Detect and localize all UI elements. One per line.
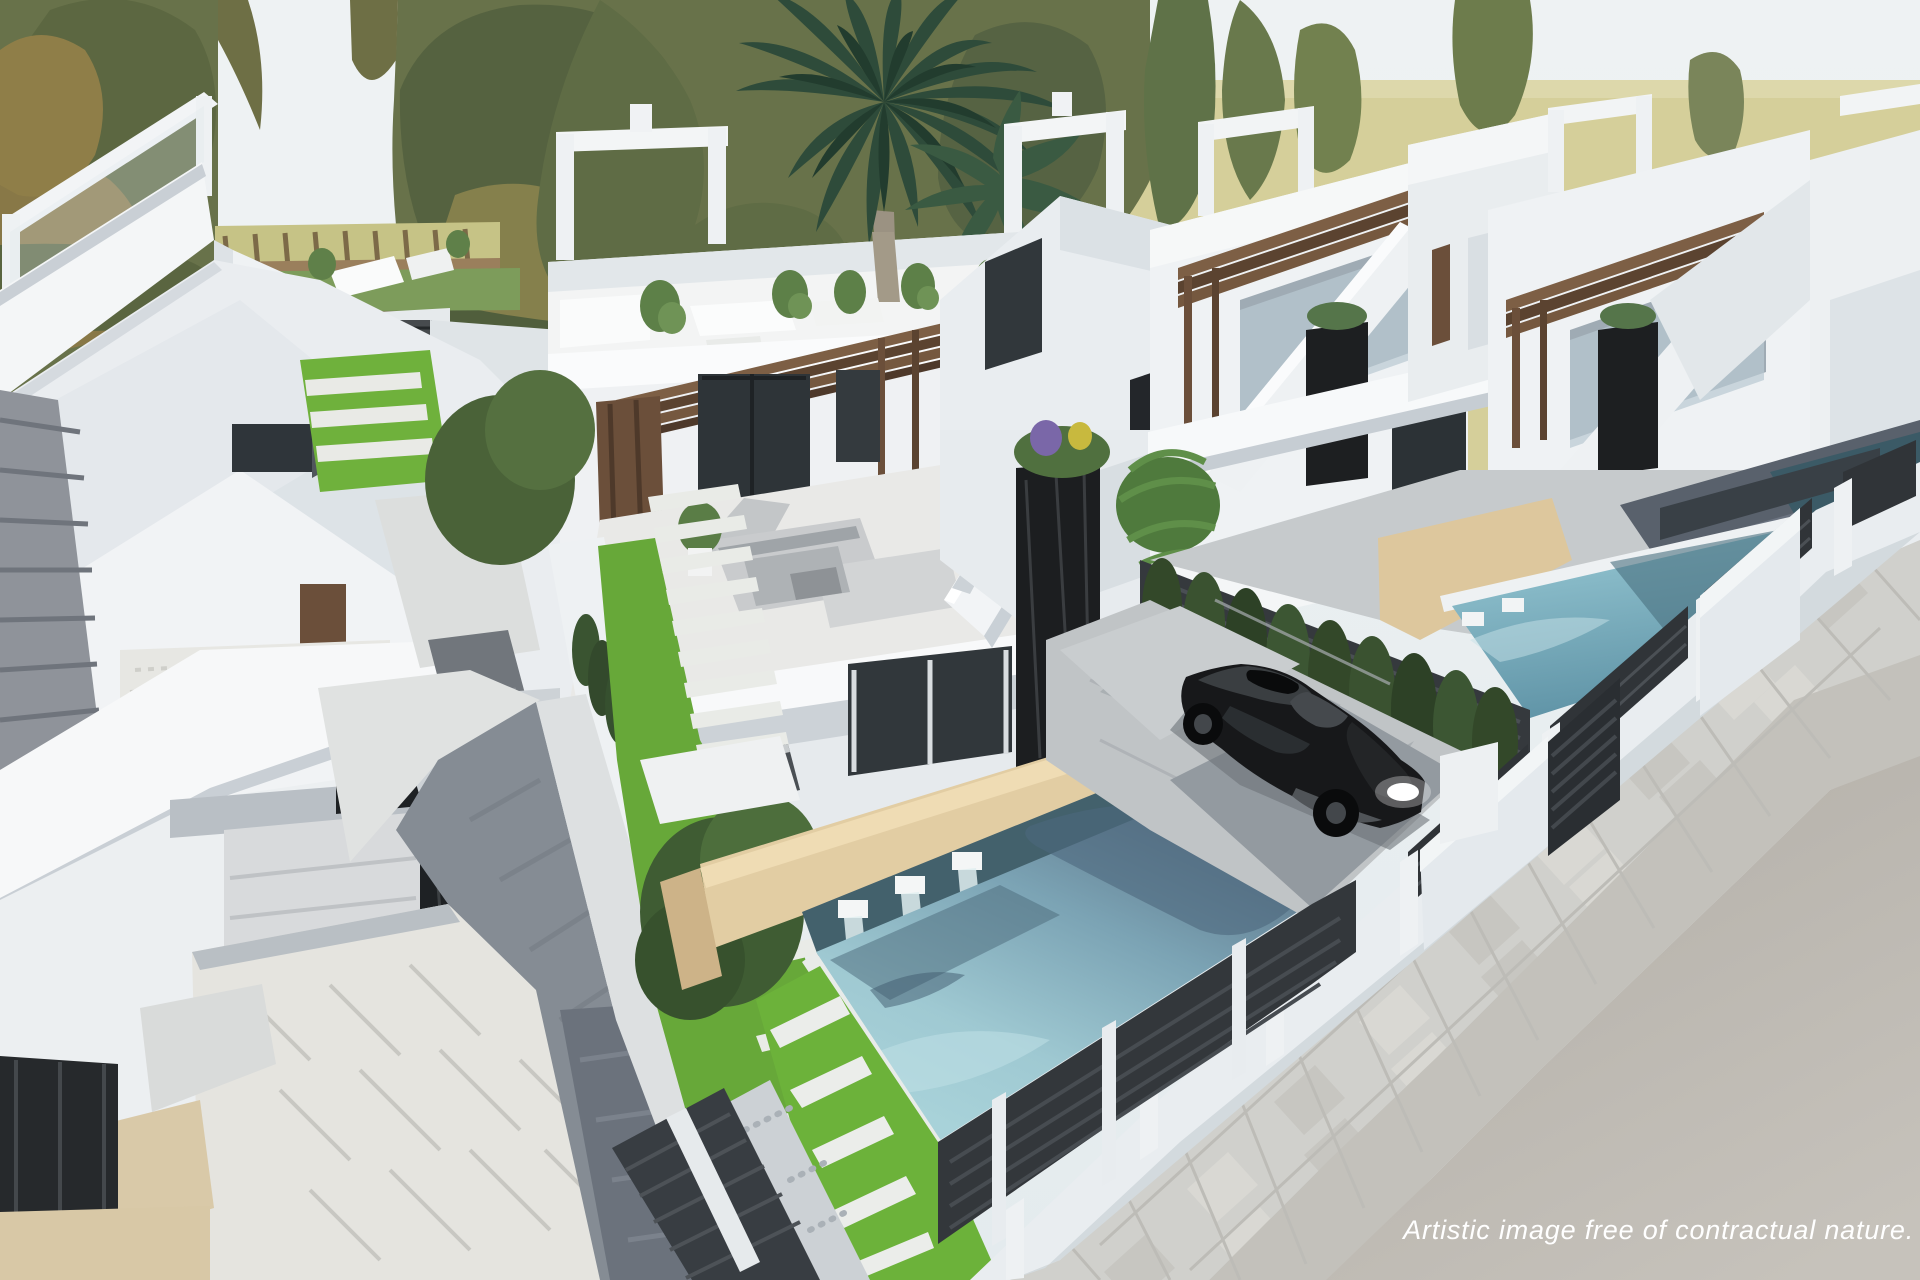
- svg-text:Artistic image free of contrac: Artistic image free of contractual natur…: [1401, 1215, 1914, 1245]
